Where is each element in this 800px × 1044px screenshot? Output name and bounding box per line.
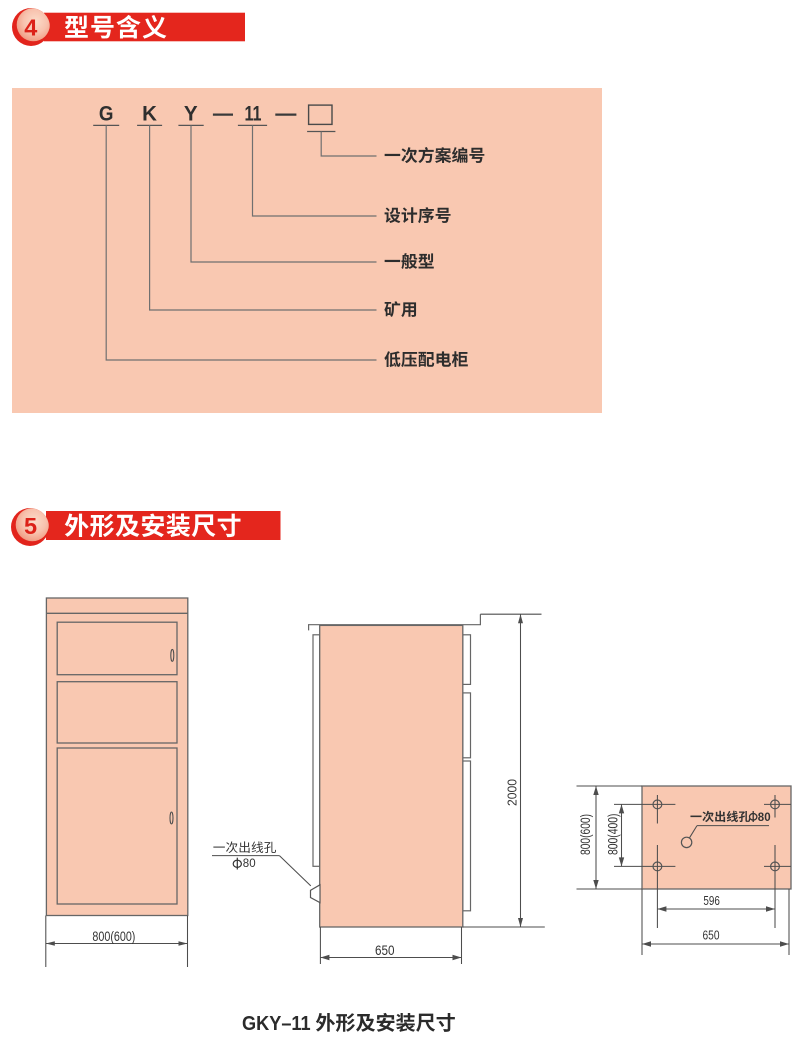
svg-text:2000: 2000 (505, 779, 520, 806)
svg-text:800(600): 800(600) (92, 928, 135, 944)
svg-text:5: 5 (24, 513, 37, 539)
svg-text:650: 650 (375, 942, 395, 958)
svg-text:4: 4 (24, 14, 37, 40)
svg-text:GKY–11: GKY–11 (242, 1013, 311, 1035)
svg-text:80: 80 (758, 812, 771, 824)
svg-text:G: G (99, 102, 114, 125)
svg-text:596: 596 (703, 893, 720, 908)
svg-text:Y: Y (184, 102, 198, 125)
svg-text:800(400): 800(400) (605, 814, 621, 856)
svg-text:K: K (142, 102, 157, 125)
svg-text:800(600): 800(600) (577, 814, 593, 855)
svg-text:11: 11 (245, 102, 262, 125)
svg-text:80: 80 (243, 858, 256, 870)
svg-text:650: 650 (703, 928, 720, 943)
